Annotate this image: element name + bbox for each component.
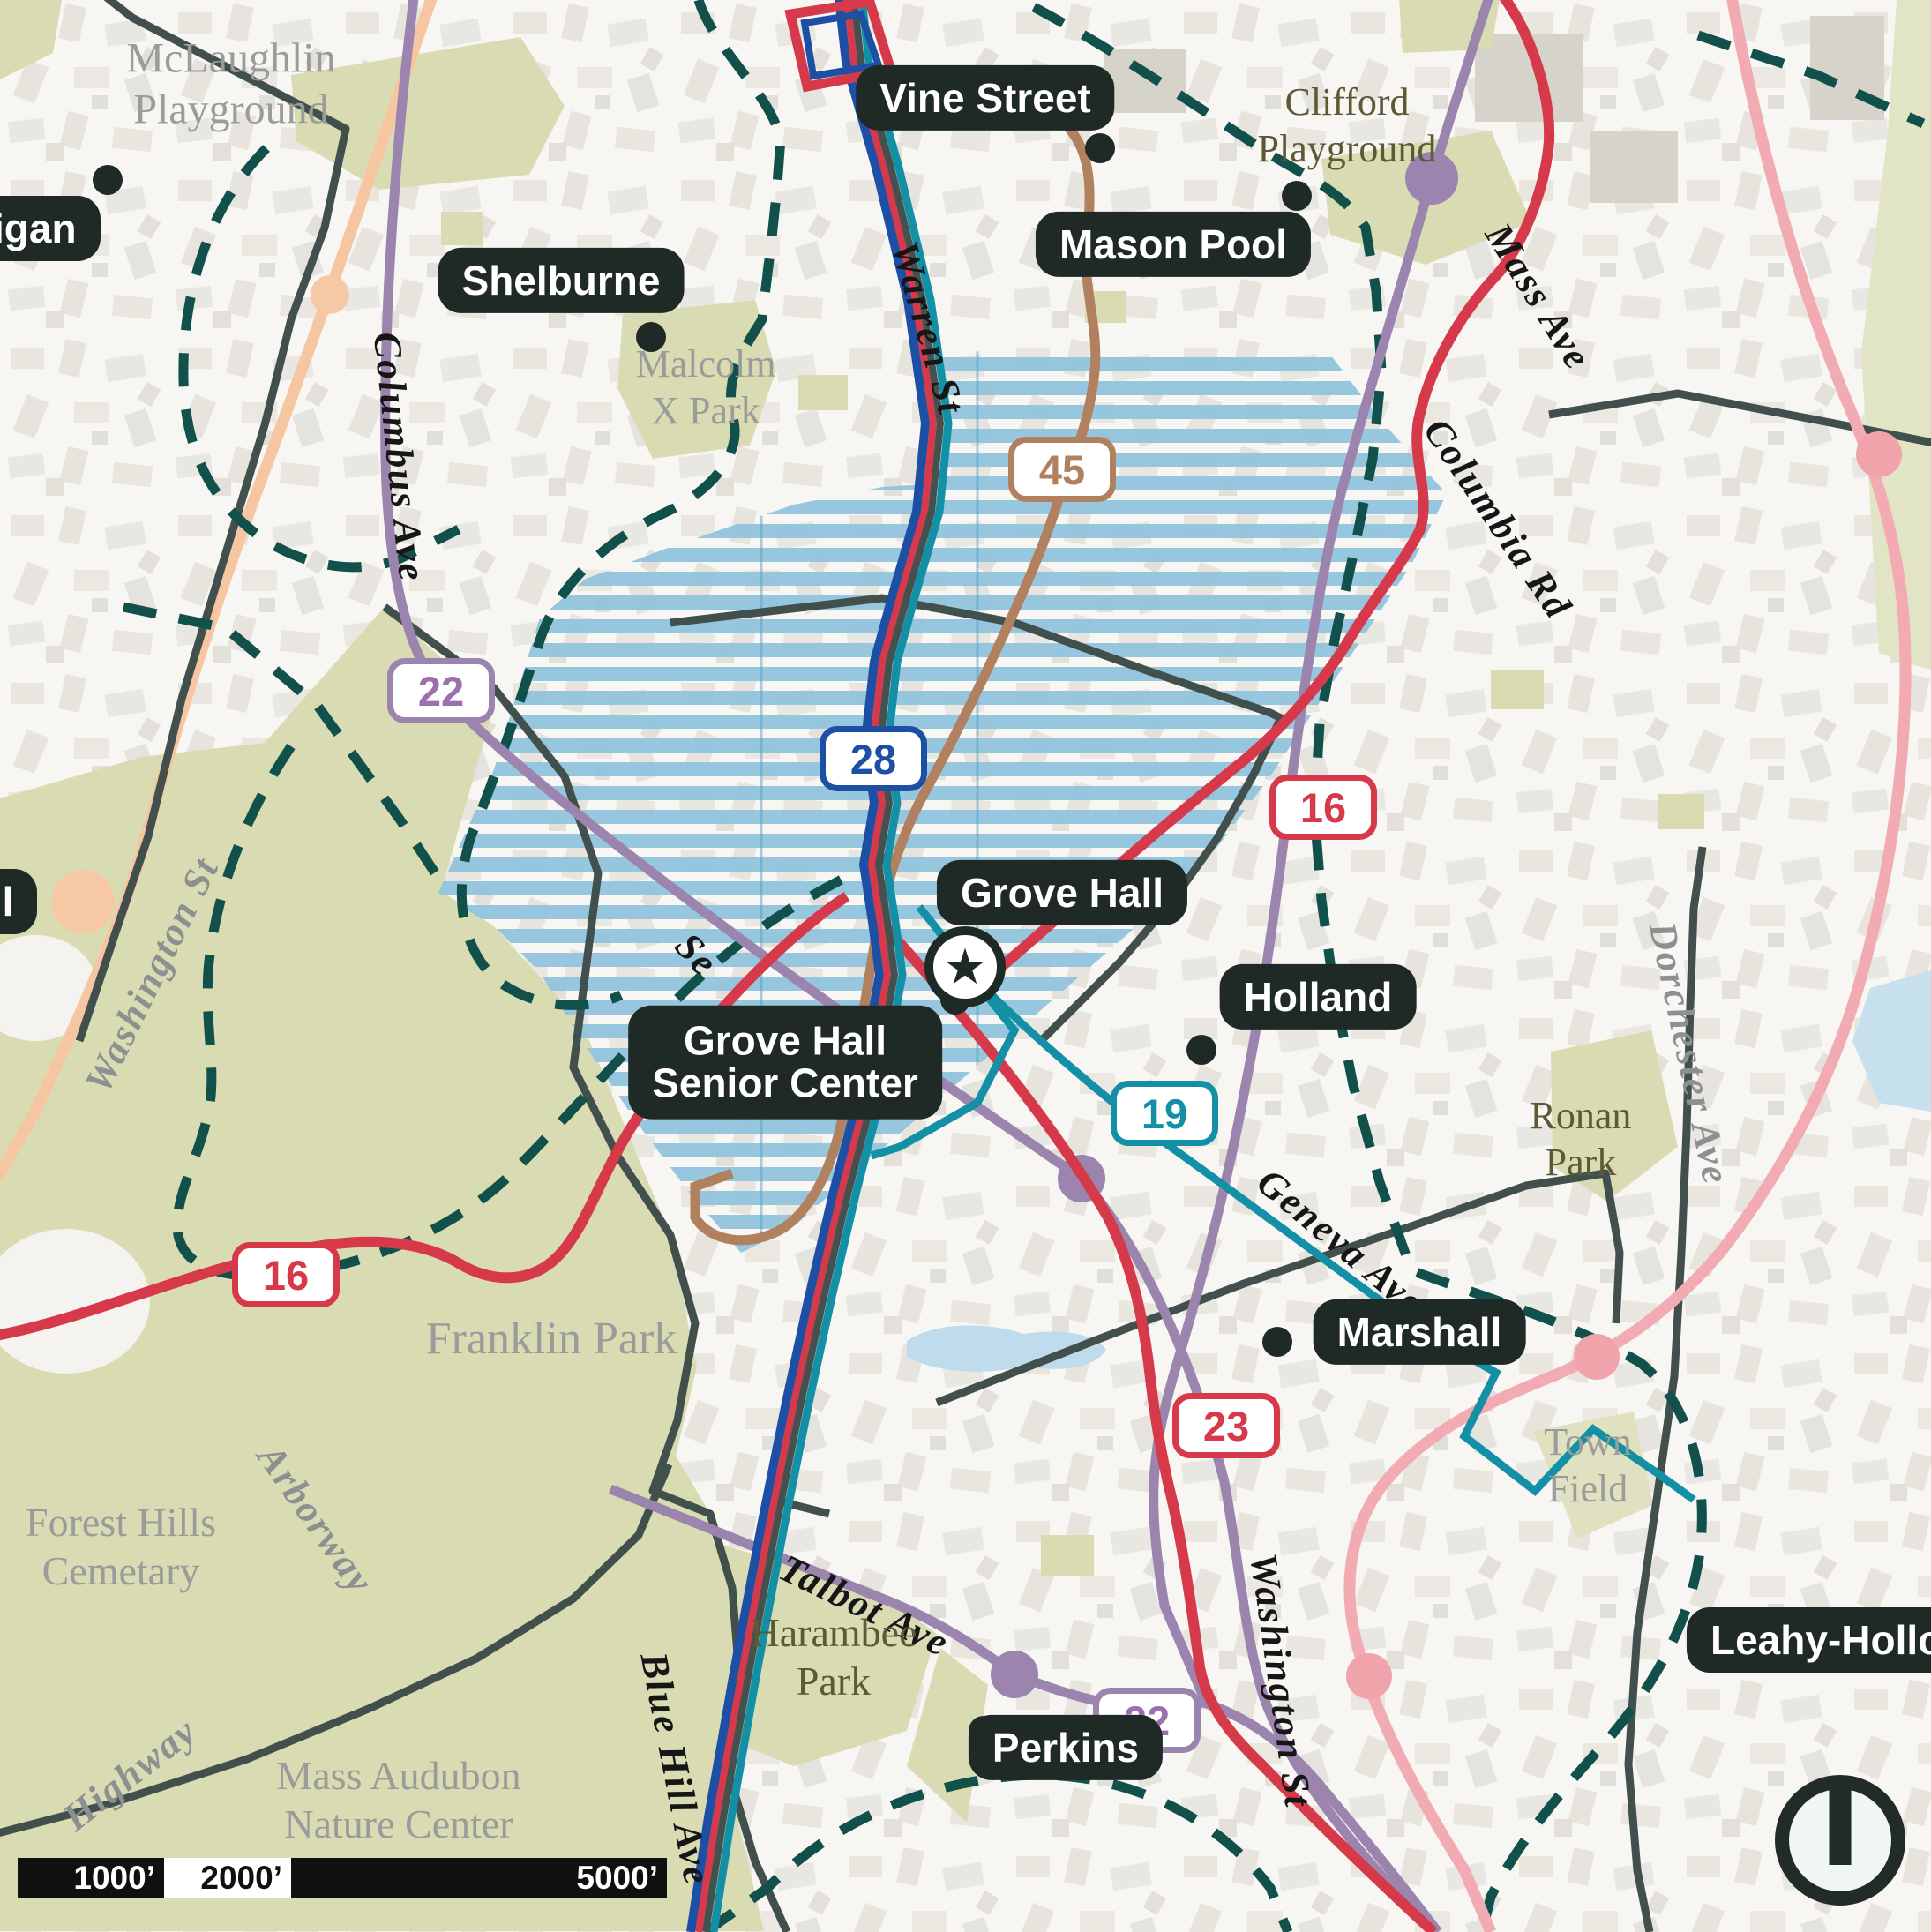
- pill-line: Senior Center: [652, 1062, 918, 1105]
- route-badge-16: 16: [1269, 775, 1377, 840]
- park-label-line: Park: [1531, 1140, 1632, 1187]
- park-label-line: Mass Audubon: [276, 1751, 520, 1800]
- center-label-marshall: Marshall: [1314, 1299, 1526, 1365]
- park-label-line: Harambee: [751, 1608, 917, 1657]
- pill-line: Grove Hall: [652, 1020, 918, 1062]
- center-label-hennigan: Hennigan: [0, 196, 101, 261]
- rotary: [311, 275, 349, 314]
- scale-segment-2000: 2000’: [164, 1858, 291, 1898]
- park-label-line: Playground: [1258, 126, 1437, 173]
- center-label-grove-hall-senior-center: Grove Hall Senior Center: [628, 1006, 942, 1120]
- route-badge-16-west: 16: [232, 1242, 340, 1307]
- park-label-forest-hills: Forest Hills Cemetary: [26, 1498, 216, 1595]
- park-label-line: Malcolm: [636, 341, 776, 388]
- rotary: [51, 870, 115, 933]
- location-dot: [1262, 1327, 1292, 1357]
- center-label-shelburne: Shelburne: [438, 248, 685, 313]
- park-label-line: Ronan: [1531, 1093, 1632, 1140]
- center-label-holland: Holland: [1220, 964, 1417, 1030]
- map-canvas: { "colors": { "route_red": "#d63a4a", "r…: [0, 0, 1931, 1932]
- park-label-line: Cemetary: [26, 1546, 216, 1595]
- route-badge-28: 28: [820, 726, 927, 791]
- location-dot: [1085, 133, 1115, 163]
- park-label-malcolm-x: Malcolm X Park: [636, 341, 776, 435]
- park-label-clifford: Clifford Playground: [1258, 79, 1437, 173]
- park-label-mass-audubon: Mass Audubon Nature Center: [276, 1751, 520, 1848]
- scale-segment-1000: 1000’: [18, 1858, 164, 1898]
- park-label-harambee: Harambee Park: [751, 1608, 917, 1705]
- north-arrow-needle: [1830, 1787, 1852, 1865]
- park-label-franklin: Franklin Park: [426, 1312, 677, 1367]
- center-label-perkins: Perkins: [969, 1715, 1163, 1780]
- center-label-hall: Hall: [0, 869, 37, 934]
- location-dot: [1186, 1035, 1216, 1065]
- route-badge-22: 22: [387, 658, 495, 723]
- park-label-ronan: Ronan Park: [1531, 1093, 1632, 1187]
- location-dot: [93, 165, 123, 195]
- scale-segment-5000: 5000’: [291, 1858, 667, 1898]
- north-arrow-icon: [1775, 1775, 1905, 1906]
- route-badge-45: 45: [1008, 437, 1116, 502]
- location-dot: [1282, 181, 1312, 211]
- park-label-line: X Park: [636, 388, 776, 435]
- park-label-line: Park: [751, 1657, 917, 1705]
- center-label-leahy-holloran: Leahy-Holloran: [1687, 1607, 1931, 1673]
- park-label-line: McLaughlin: [126, 33, 335, 84]
- park-label-town-field: Town Field: [1544, 1419, 1632, 1513]
- park-label-line: Town: [1544, 1419, 1632, 1466]
- center-label-vine-street: Vine Street: [856, 65, 1114, 131]
- park-label-line: Field: [1544, 1466, 1632, 1513]
- park-label-line: Playground: [126, 84, 335, 135]
- park-label-mclaughlin: McLaughlin Playground: [126, 33, 335, 134]
- star-icon: ★: [924, 926, 1006, 1007]
- route-badge-23: 23: [1172, 1393, 1280, 1458]
- park-label-line: Clifford: [1258, 79, 1437, 126]
- center-label-mason-pool: Mason Pool: [1036, 212, 1311, 277]
- park-label-line: Nature Center: [276, 1800, 520, 1848]
- park-label-line: Forest Hills: [26, 1498, 216, 1546]
- route-badge-19: 19: [1111, 1081, 1218, 1146]
- center-label-grove-hall: Grove Hall: [937, 860, 1187, 925]
- scale-bar: 1000’ 2000’ 5000’: [18, 1858, 667, 1898]
